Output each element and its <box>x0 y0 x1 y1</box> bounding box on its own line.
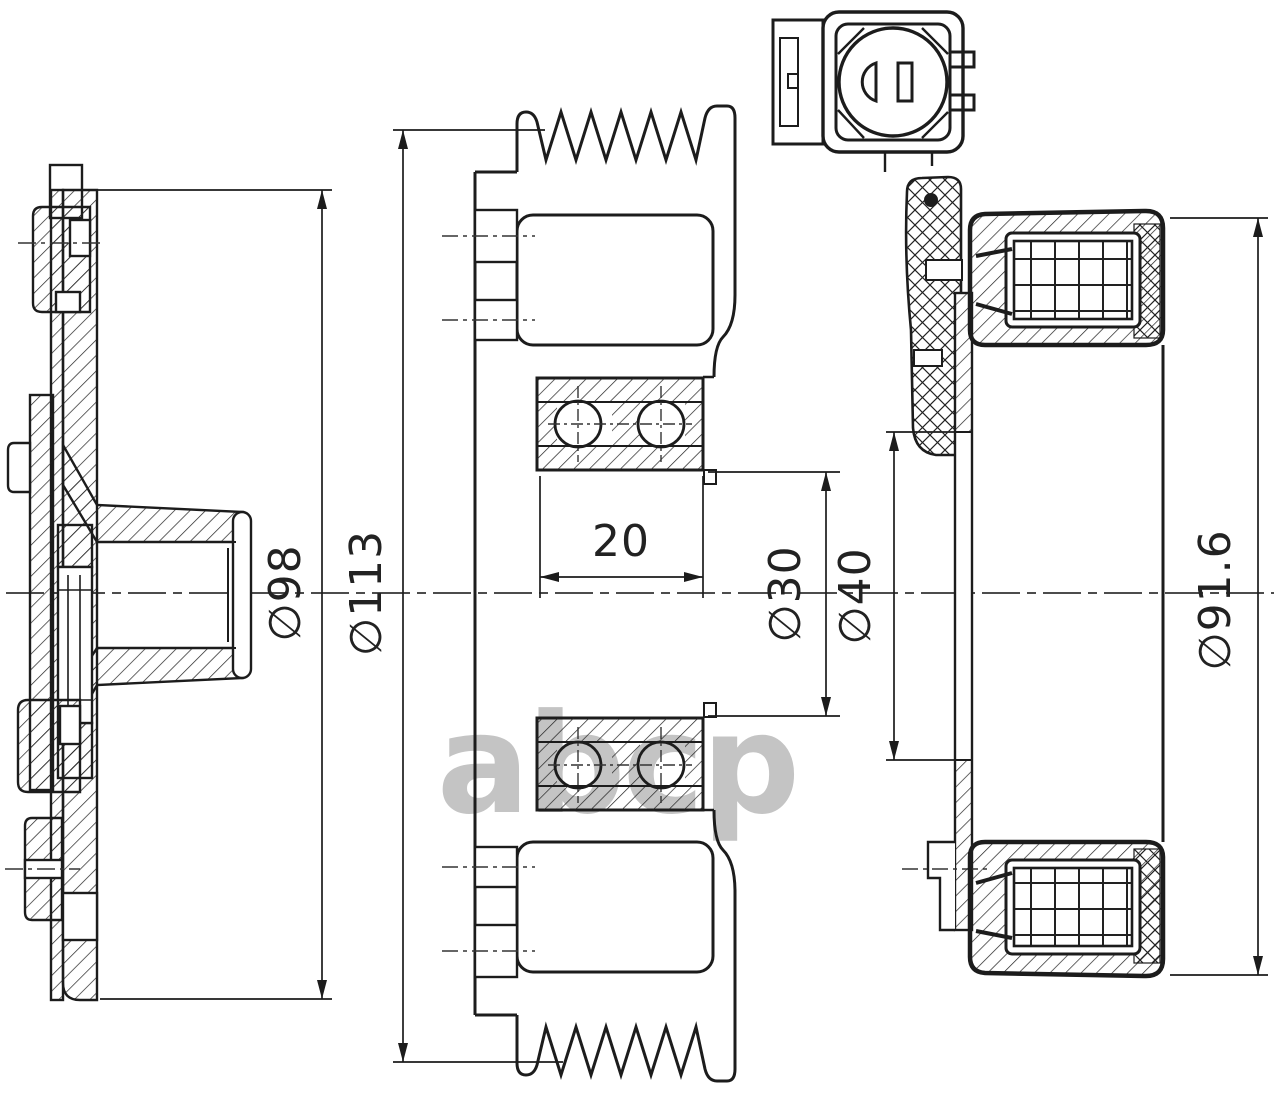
dim-label-20: 20 <box>592 516 650 567</box>
coil-winding <box>1014 868 1132 946</box>
dim-label-40: ∅40 <box>830 547 881 644</box>
dim-label-113: ∅113 <box>341 530 392 656</box>
rivet-upper <box>58 525 92 567</box>
dimension-coil-bore: ∅40 <box>830 432 956 760</box>
web-cavity-top <box>517 215 713 345</box>
dimension-bearing-bore: ∅30 <box>708 472 840 716</box>
drawing-page: abcp <box>0 0 1280 1104</box>
coil-section-bottom <box>970 842 1163 976</box>
dimension-coil-diameter: ∅91.6 <box>1170 218 1268 975</box>
dim-label-916: ∅91.6 <box>1190 529 1241 670</box>
right-view-coil-housing <box>902 177 1163 976</box>
flange-bottom-tab <box>928 842 955 930</box>
mounting-bracket <box>906 177 961 455</box>
bearing-upper-section <box>537 378 703 470</box>
connector-detail <box>773 12 974 172</box>
bracket-hole <box>924 193 938 207</box>
hub-bore <box>97 542 236 648</box>
hub-end-cap <box>233 512 251 678</box>
disc-step-notch <box>63 893 97 940</box>
coil-section-top <box>970 211 1163 345</box>
dimension-bearing-width: 20 <box>540 476 703 598</box>
dimension-disc-diameter: ∅98 <box>85 190 332 999</box>
web-cavity-bottom <box>517 842 713 972</box>
hub-bolt <box>8 443 30 492</box>
coil-winding <box>1014 241 1132 319</box>
dim-label-30: ∅30 <box>760 545 811 642</box>
connector-body <box>823 12 963 152</box>
technical-drawing: abcp <box>0 0 1280 1104</box>
dim-label-98: ∅98 <box>260 544 311 641</box>
left-view-clutch-disc <box>5 165 251 1000</box>
